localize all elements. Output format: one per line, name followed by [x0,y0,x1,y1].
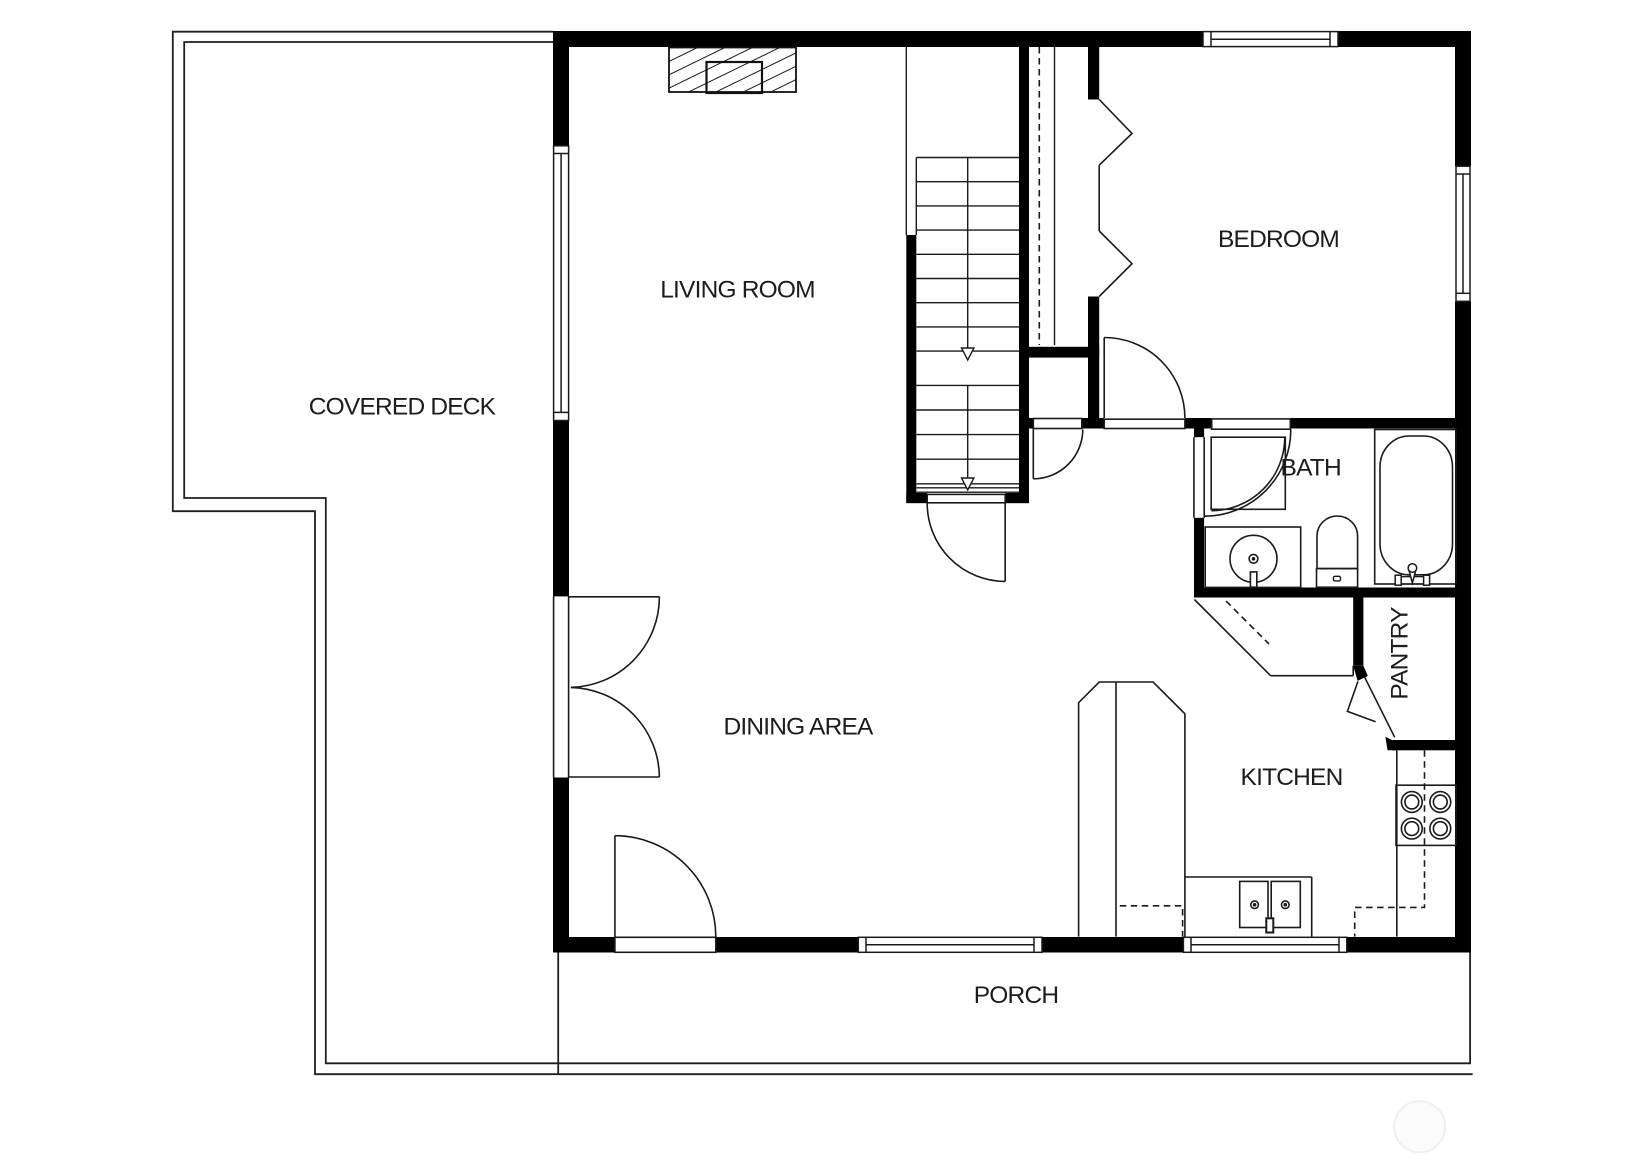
svg-text:BATH: BATH [1281,454,1341,481]
svg-text:PORCH: PORCH [974,982,1058,1009]
svg-text:DINING AREA: DINING AREA [723,714,874,741]
svg-text:BEDROOM: BEDROOM [1218,226,1339,253]
svg-text:PANTRY: PANTRY [1387,607,1414,700]
svg-text:LIVING ROOM: LIVING ROOM [660,277,815,304]
svg-text:KITCHEN: KITCHEN [1241,764,1343,791]
svg-text:COVERED DECK: COVERED DECK [309,394,497,421]
